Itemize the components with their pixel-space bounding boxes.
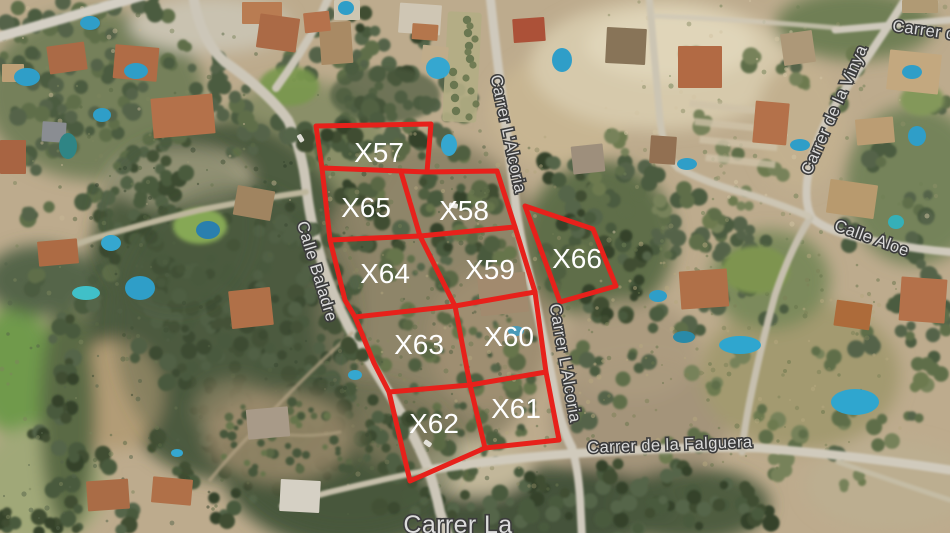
- svg-text:X61: X61: [491, 393, 541, 424]
- svg-text:X60: X60: [484, 321, 534, 352]
- svg-text:X64: X64: [360, 258, 410, 289]
- svg-text:X66: X66: [552, 243, 602, 274]
- svg-text:X58: X58: [439, 195, 489, 226]
- svg-text:X62: X62: [409, 408, 459, 439]
- svg-text:X65: X65: [341, 192, 391, 223]
- svg-text:X59: X59: [465, 254, 515, 285]
- svg-text:Carrer La: Carrer La: [403, 511, 512, 533]
- svg-text:X57: X57: [354, 137, 404, 168]
- svg-text:X63: X63: [394, 329, 444, 360]
